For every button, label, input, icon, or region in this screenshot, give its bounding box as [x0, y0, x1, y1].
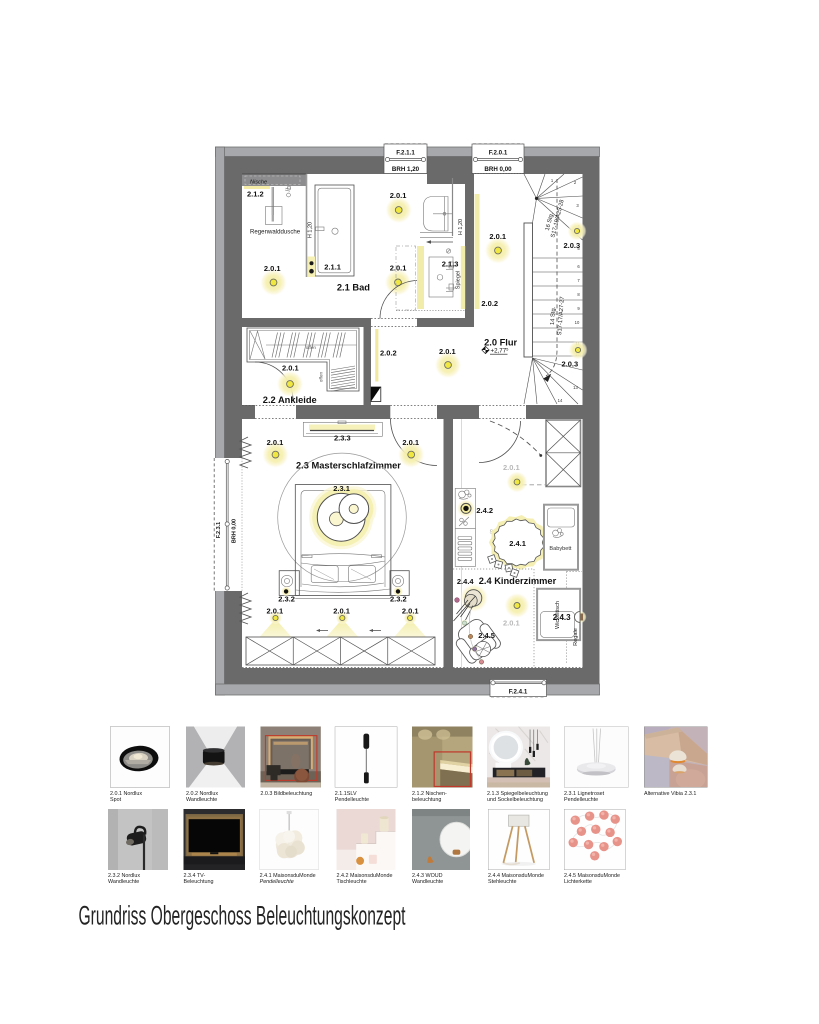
svg-text:offen: offen: [319, 371, 324, 382]
svg-text:2.0.3: 2.0.3: [564, 241, 581, 250]
svg-text:F.2.3.1: F.2.3.1: [216, 522, 222, 539]
svg-text:H 1,20: H 1,20: [308, 222, 314, 238]
svg-text:2.0.1: 2.0.1: [390, 191, 407, 200]
svg-text:Wandleuchte: Wandleuchte: [186, 797, 217, 803]
svg-text:10: 10: [575, 320, 580, 325]
svg-text:Regenwalddusche: Regenwalddusche: [250, 229, 301, 236]
svg-text:und Sockelbeleuchtung: und Sockelbeleuchtung: [487, 797, 543, 803]
svg-text:Pendelleuchte: Pendelleuchte: [335, 797, 369, 803]
svg-text:Tischleuchte: Tischleuchte: [337, 879, 367, 885]
svg-text:2.4 Kinderzimmer: 2.4 Kinderzimmer: [479, 576, 557, 586]
svg-text:2.0.1: 2.0.1: [267, 438, 284, 447]
svg-text:14: 14: [558, 398, 563, 403]
svg-text:F.2.4.1: F.2.4.1: [509, 689, 528, 696]
svg-text:2.3.3: 2.3.3: [334, 433, 351, 442]
svg-text:2.1.2: 2.1.2: [247, 190, 264, 199]
svg-text:2.0.1: 2.0.1: [264, 264, 281, 273]
svg-text:F.2.0.1: F.2.0.1: [489, 150, 508, 157]
svg-text:2.0.1: 2.0.1: [267, 607, 284, 616]
svg-text:2.4.2: 2.4.2: [476, 506, 493, 515]
svg-text:Stehleuchte: Stehleuchte: [488, 879, 516, 885]
svg-text:2.0.3 Bildbeleuchtung: 2.0.3 Bildbeleuchtung: [260, 791, 312, 797]
svg-text:2.0.1: 2.0.1: [439, 347, 456, 356]
svg-text:Regale: Regale: [573, 628, 579, 646]
svg-text:Wandleuchte: Wandleuchte: [412, 879, 443, 885]
svg-text:2.1.3: 2.1.3: [442, 260, 459, 269]
svg-text:2.3.2: 2.3.2: [278, 595, 295, 604]
svg-text:Spiegel: Spiegel: [456, 271, 462, 289]
svg-text:2.0.1: 2.0.1: [282, 363, 299, 372]
svg-text:Wandleuchte: Wandleuchte: [108, 879, 139, 885]
svg-text:2.0.3: 2.0.3: [562, 360, 579, 369]
svg-text:2.0 Flur: 2.0 Flur: [484, 338, 517, 348]
svg-text:BRH 1,20: BRH 1,20: [392, 166, 420, 173]
svg-text:Spot: Spot: [110, 797, 122, 803]
svg-text:Nische: Nische: [250, 179, 267, 185]
svg-text:2.3 Masterschlafzimmer: 2.3 Masterschlafzimmer: [296, 460, 401, 470]
svg-text:2.3.1: 2.3.1: [333, 484, 350, 493]
svg-text:Pendelleuchte: Pendelleuchte: [260, 879, 294, 885]
svg-text:2.0.1: 2.0.1: [489, 232, 506, 241]
svg-text:2.1 Bad: 2.1 Bad: [337, 283, 370, 293]
svg-text:2.0.1: 2.0.1: [402, 438, 419, 447]
svg-text:2.1.1: 2.1.1: [324, 263, 341, 272]
svg-text:2.0.1: 2.0.1: [402, 607, 419, 616]
svg-text:2.0.1: 2.0.1: [503, 463, 520, 472]
svg-text:2.2 Ankleide: 2.2 Ankleide: [263, 395, 317, 405]
svg-text:2.0.1: 2.0.1: [503, 619, 520, 628]
svg-text:Babybett: Babybett: [549, 546, 572, 552]
svg-text:2.0.2: 2.0.2: [380, 349, 397, 358]
svg-text:offen: offen: [306, 345, 317, 350]
svg-text:2.4.3: 2.4.3: [553, 613, 571, 622]
svg-text:Beleuchtung: Beleuchtung: [184, 879, 214, 885]
svg-text:Pendelleuchte: Pendelleuchte: [564, 797, 598, 803]
svg-text:2.0.2: 2.0.2: [481, 299, 498, 308]
svg-text:13: 13: [573, 385, 578, 390]
svg-text:beleuchtung: beleuchtung: [412, 797, 441, 803]
svg-text:Lichterkette: Lichterkette: [564, 879, 592, 885]
svg-text:2.4.5: 2.4.5: [478, 631, 495, 640]
svg-text:BRH 0,00: BRH 0,00: [484, 166, 512, 173]
svg-text:H 1,20: H 1,20: [458, 219, 464, 235]
svg-text:2.0.1: 2.0.1: [390, 264, 407, 273]
svg-text:2.4.1: 2.4.1: [509, 539, 526, 548]
svg-text:Grundriss Obergeschoss Beleuch: Grundriss Obergeschoss Beleuchtungskonze…: [79, 901, 406, 931]
svg-text:2.0.1: 2.0.1: [333, 607, 350, 616]
svg-text:Alternative Vibia 2.3.1: Alternative Vibia 2.3.1: [644, 791, 696, 797]
svg-text:F.2.1.1: F.2.1.1: [396, 150, 415, 157]
svg-text:2.3.2: 2.3.2: [390, 595, 407, 604]
svg-text:BRH 0,00: BRH 0,00: [232, 519, 238, 543]
